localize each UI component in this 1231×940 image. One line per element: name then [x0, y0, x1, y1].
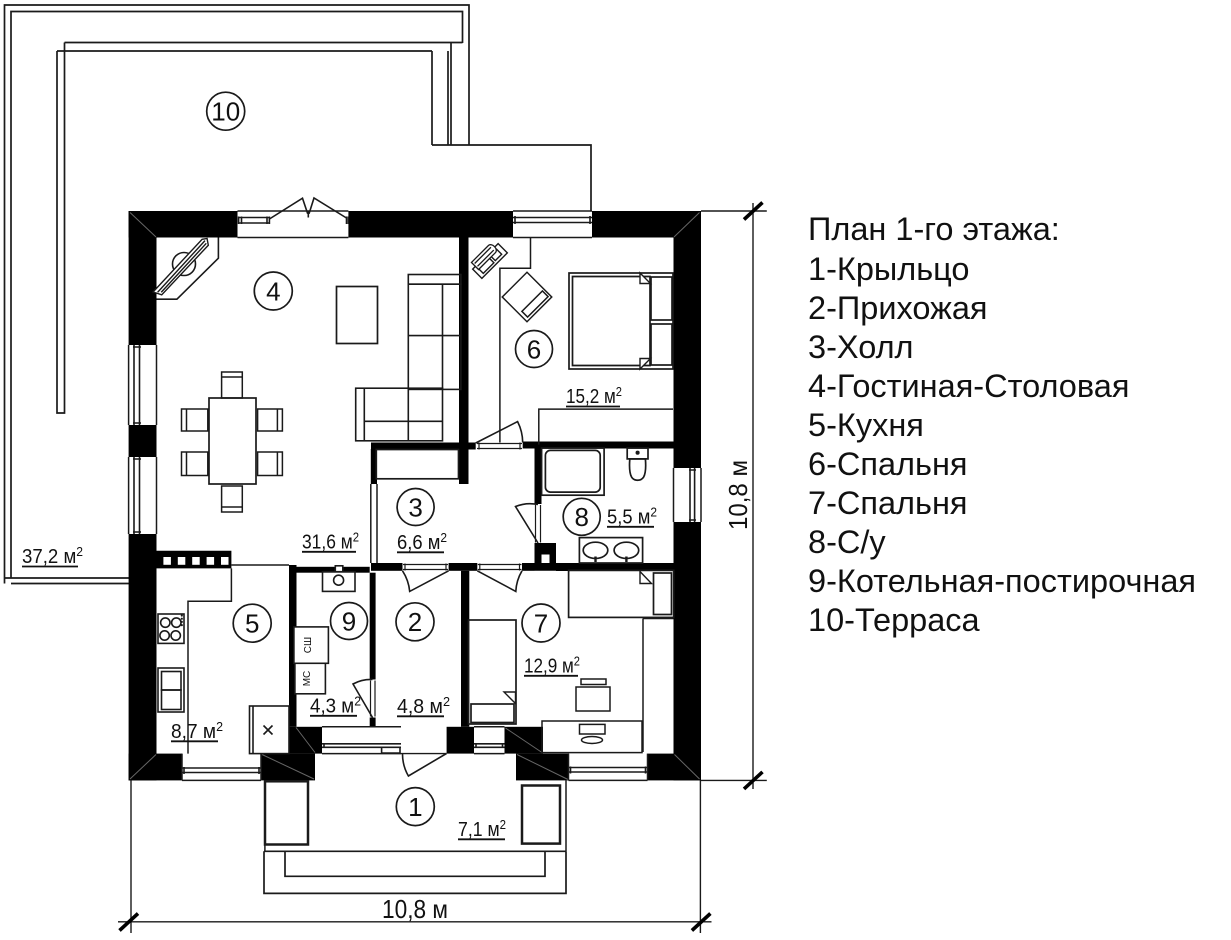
svg-text:7,1 м2: 7,1 м2 — [458, 817, 506, 841]
svg-text:2-Прихожая: 2-Прихожая — [808, 290, 988, 326]
svg-text:10-Терраса: 10-Терраса — [808, 602, 981, 638]
svg-text:5,5 м2: 5,5 м2 — [607, 505, 657, 529]
svg-text:2: 2 — [408, 607, 422, 637]
svg-text:5-Кухня: 5-Кухня — [808, 407, 924, 443]
svg-text:4,8 м2: 4,8 м2 — [397, 694, 450, 718]
svg-text:7: 7 — [534, 608, 548, 638]
svg-text:12,9 м2: 12,9 м2 — [524, 654, 580, 678]
svg-text:8: 8 — [574, 502, 588, 532]
svg-text:1-Крыльцо: 1-Крыльцо — [808, 251, 969, 287]
svg-text:31,6 м2: 31,6 м2 — [302, 530, 359, 554]
svg-text:10,8 м: 10,8 м — [723, 460, 753, 530]
svg-text:10,8 м: 10,8 м — [382, 894, 448, 924]
svg-text:37,2 м2: 37,2 м2 — [22, 544, 83, 568]
svg-text:План 1-го этажа:: План 1-го этажа: — [808, 211, 1060, 247]
svg-text:4-Гостиная-Столовая: 4-Гостиная-Столовая — [808, 368, 1129, 404]
svg-text:3-Холл: 3-Холл — [808, 329, 914, 365]
svg-text:9-Котельная-постирочная: 9-Котельная-постирочная — [808, 563, 1196, 599]
svg-text:8-С/у: 8-С/у — [808, 524, 886, 560]
svg-text:10: 10 — [211, 97, 240, 127]
svg-text:6-Спальня: 6-Спальня — [808, 446, 968, 482]
svg-text:6: 6 — [527, 334, 541, 364]
svg-text:4,3 м2: 4,3 м2 — [310, 694, 361, 718]
svg-text:9: 9 — [342, 606, 356, 636]
svg-text:1: 1 — [408, 792, 422, 822]
svg-text:СШ: СШ — [303, 637, 314, 653]
svg-text:15,2 м2: 15,2 м2 — [566, 384, 622, 408]
svg-text:8,7 м2: 8,7 м2 — [171, 719, 223, 743]
svg-text:6,6 м2: 6,6 м2 — [397, 530, 447, 554]
svg-text:7-Спальня: 7-Спальня — [808, 485, 968, 521]
svg-text:4: 4 — [266, 276, 280, 306]
svg-text:5: 5 — [245, 609, 259, 639]
svg-text:3: 3 — [408, 492, 422, 522]
svg-text:МС: МС — [302, 671, 313, 687]
